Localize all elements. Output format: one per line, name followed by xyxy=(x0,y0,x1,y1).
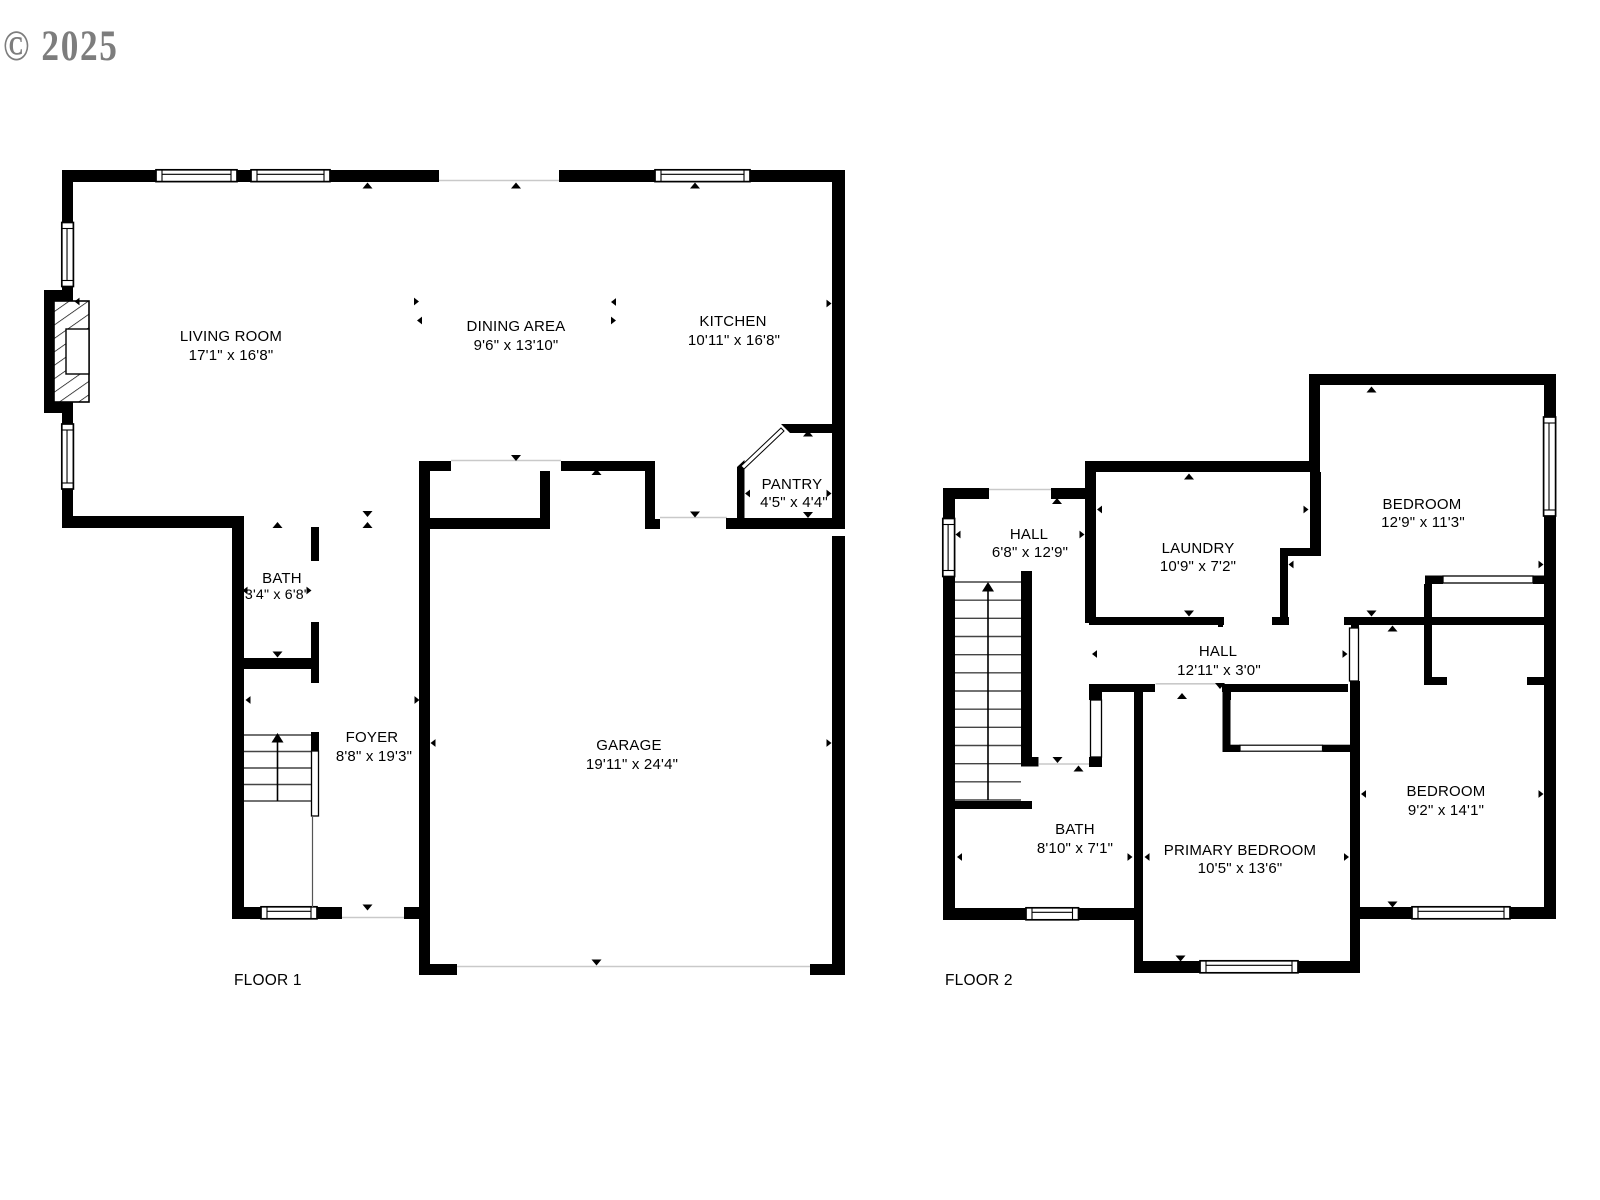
svg-text:3'4" x 6'8": 3'4" x 6'8" xyxy=(245,587,309,603)
svg-text:BEDROOM: BEDROOM xyxy=(1383,496,1462,513)
svg-text:12'9" x 11'3": 12'9" x 11'3" xyxy=(1381,514,1465,531)
svg-text:PANTRY: PANTRY xyxy=(762,476,823,493)
svg-text:KITCHEN: KITCHEN xyxy=(699,313,766,330)
svg-text:8'8" x 19'3": 8'8" x 19'3" xyxy=(336,748,412,765)
svg-text:HALL: HALL xyxy=(1010,526,1048,543)
svg-text:6'8" x 12'9": 6'8" x 12'9" xyxy=(992,544,1068,561)
svg-text:10'9" x 7'2": 10'9" x 7'2" xyxy=(1160,558,1236,575)
svg-text:9'6" x 13'10": 9'6" x 13'10" xyxy=(474,337,559,354)
svg-text:FLOOR 1: FLOOR 1 xyxy=(234,972,302,989)
svg-text:DINING AREA: DINING AREA xyxy=(467,318,566,335)
svg-text:LAUNDRY: LAUNDRY xyxy=(1162,540,1235,557)
svg-text:12'11" x 3'0": 12'11" x 3'0" xyxy=(1177,662,1261,679)
svg-text:PRIMARY BEDROOM: PRIMARY BEDROOM xyxy=(1164,842,1316,859)
svg-text:4'5" x 4'4": 4'5" x 4'4" xyxy=(760,494,828,511)
svg-text:FOYER: FOYER xyxy=(346,729,399,746)
svg-text:© 2025: © 2025 xyxy=(3,22,118,70)
svg-text:HALL: HALL xyxy=(1199,643,1237,660)
svg-text:BEDROOM: BEDROOM xyxy=(1407,783,1486,800)
svg-text:10'5" x 13'6": 10'5" x 13'6" xyxy=(1198,860,1283,877)
svg-text:GARAGE: GARAGE xyxy=(596,737,661,754)
svg-text:BATH: BATH xyxy=(1055,821,1095,838)
svg-text:FLOOR 2: FLOOR 2 xyxy=(945,972,1013,989)
svg-text:8'10" x 7'1": 8'10" x 7'1" xyxy=(1037,840,1113,857)
svg-text:17'1" x 16'8": 17'1" x 16'8" xyxy=(189,347,274,364)
svg-text:19'11" x 24'4": 19'11" x 24'4" xyxy=(586,756,678,773)
svg-text:LIVING ROOM: LIVING ROOM xyxy=(180,328,282,345)
svg-text:9'2" x 14'1": 9'2" x 14'1" xyxy=(1408,802,1484,819)
svg-text:10'11" x 16'8": 10'11" x 16'8" xyxy=(688,332,780,349)
svg-text:BATH: BATH xyxy=(262,570,302,587)
